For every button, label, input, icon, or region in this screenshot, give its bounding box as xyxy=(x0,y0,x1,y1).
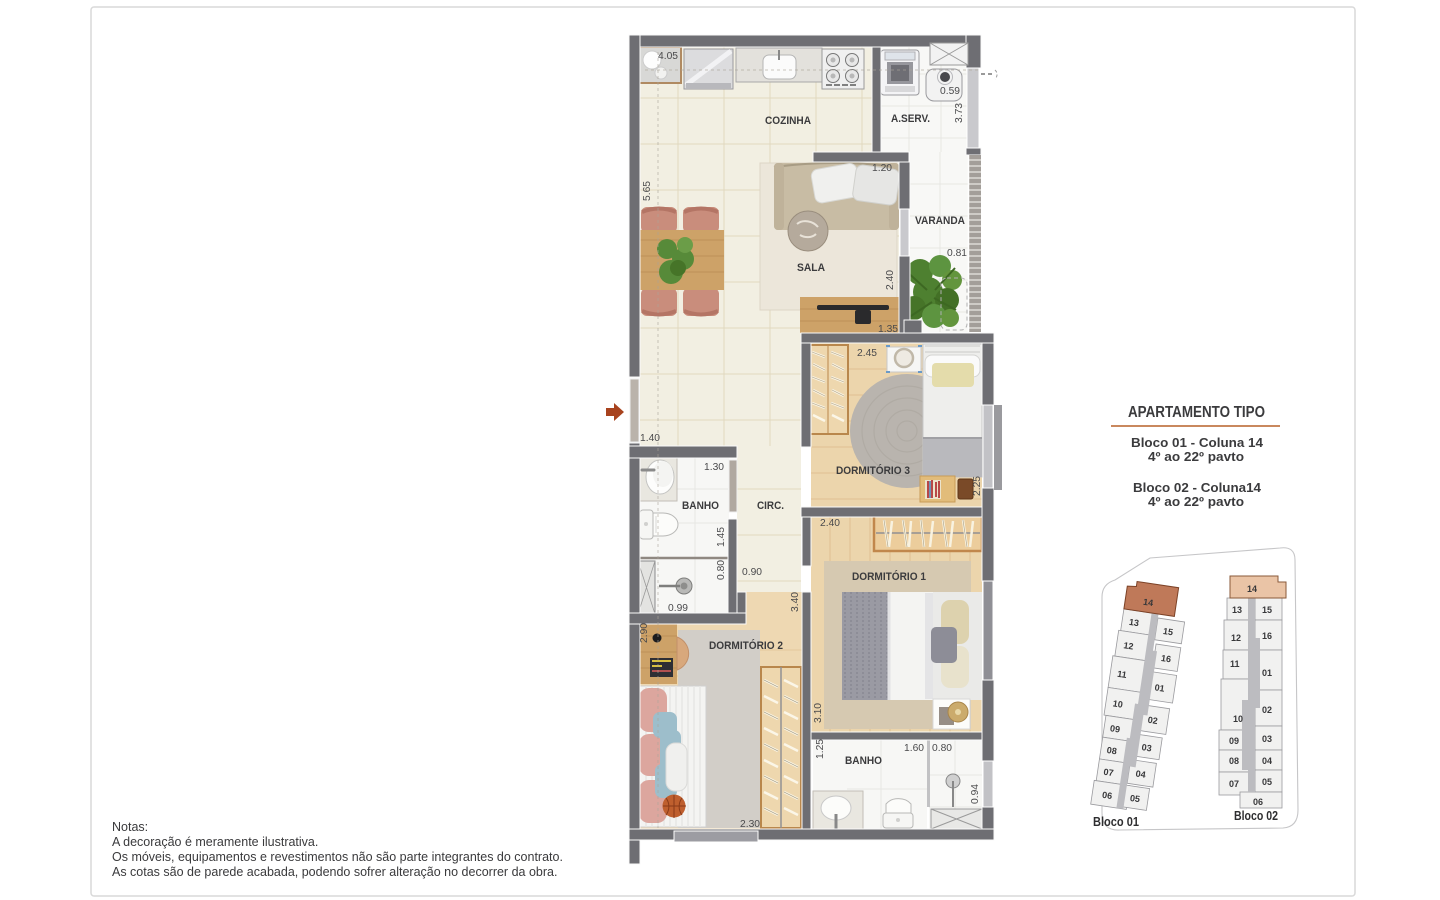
svg-text:BANHO: BANHO xyxy=(682,500,719,512)
svg-text:10: 10 xyxy=(1112,698,1123,709)
svg-text:4º ao 22º pavto: 4º ao 22º pavto xyxy=(1148,449,1244,464)
svg-text:04: 04 xyxy=(1135,768,1146,779)
svg-text:Notas:: Notas: xyxy=(112,820,148,834)
svg-text:10: 10 xyxy=(1233,714,1243,724)
svg-text:02: 02 xyxy=(1262,705,1272,715)
svg-text:5.65: 5.65 xyxy=(642,181,653,201)
svg-text:1.25: 1.25 xyxy=(815,739,826,759)
svg-text:Bloco 02: Bloco 02 xyxy=(1234,809,1278,823)
svg-text:VARANDA: VARANDA xyxy=(915,215,965,227)
svg-text:1.40: 1.40 xyxy=(640,433,660,444)
svg-text:2.30: 2.30 xyxy=(740,819,760,830)
svg-text:09: 09 xyxy=(1109,723,1120,734)
svg-text:1.60: 1.60 xyxy=(904,743,924,754)
svg-text:11: 11 xyxy=(1117,669,1128,680)
svg-text:1.35: 1.35 xyxy=(878,324,898,335)
svg-text:13: 13 xyxy=(1232,605,1242,615)
svg-text:01: 01 xyxy=(1154,682,1165,693)
svg-text:07: 07 xyxy=(1103,767,1114,778)
svg-text:0.99: 0.99 xyxy=(668,603,688,614)
svg-text:BANHO: BANHO xyxy=(845,755,882,767)
svg-text:15: 15 xyxy=(1162,626,1173,637)
svg-text:06: 06 xyxy=(1101,790,1112,801)
svg-text:DORMITÓRIO 2: DORMITÓRIO 2 xyxy=(709,639,783,652)
svg-text:01: 01 xyxy=(1262,668,1272,678)
svg-text:11: 11 xyxy=(1230,659,1240,669)
svg-text:03: 03 xyxy=(1141,742,1152,753)
svg-text:1.20: 1.20 xyxy=(872,163,892,174)
svg-text:16: 16 xyxy=(1160,653,1171,664)
svg-text:2.25: 2.25 xyxy=(972,476,983,496)
svg-text:APARTAMENTO TIPO: APARTAMENTO TIPO xyxy=(1128,404,1265,421)
svg-text:0.59: 0.59 xyxy=(940,86,960,97)
svg-text:2.40: 2.40 xyxy=(885,270,896,290)
svg-text:05: 05 xyxy=(1262,777,1272,787)
svg-text:0.81: 0.81 xyxy=(947,248,967,259)
svg-text:03: 03 xyxy=(1262,734,1272,744)
svg-text:08: 08 xyxy=(1229,756,1239,766)
svg-text:A.SERV.: A.SERV. xyxy=(891,113,930,125)
svg-text:16: 16 xyxy=(1262,631,1272,641)
svg-text:14: 14 xyxy=(1247,584,1257,594)
svg-text:Bloco 01: Bloco 01 xyxy=(1093,815,1139,829)
svg-text:Os móveis, equipamentos e reve: Os móveis, equipamentos e revestimentos … xyxy=(112,850,563,864)
svg-text:06: 06 xyxy=(1253,797,1263,807)
svg-text:1.30: 1.30 xyxy=(704,462,724,473)
svg-text:07: 07 xyxy=(1229,779,1239,789)
svg-text:09: 09 xyxy=(1229,736,1239,746)
svg-text:12: 12 xyxy=(1231,633,1241,643)
svg-text:2.90: 2.90 xyxy=(639,623,650,643)
svg-text:14: 14 xyxy=(1142,597,1153,608)
svg-text:2.45: 2.45 xyxy=(857,348,877,359)
svg-text:0.90: 0.90 xyxy=(742,567,762,578)
svg-text:13: 13 xyxy=(1128,617,1139,628)
svg-text:DORMITÓRIO 1: DORMITÓRIO 1 xyxy=(852,570,926,583)
svg-text:04: 04 xyxy=(1262,756,1272,766)
svg-text:3.73: 3.73 xyxy=(954,103,965,123)
svg-text:DORMITÓRIO 3: DORMITÓRIO 3 xyxy=(836,464,910,477)
svg-text:08: 08 xyxy=(1106,745,1117,756)
svg-text:12: 12 xyxy=(1123,640,1134,651)
svg-text:SALA: SALA xyxy=(797,262,825,274)
svg-text:4º ao 22º pavto: 4º ao 22º pavto xyxy=(1148,494,1244,509)
svg-text:15: 15 xyxy=(1262,605,1272,615)
svg-text:4.05: 4.05 xyxy=(658,51,678,62)
svg-text:05: 05 xyxy=(1129,793,1140,804)
svg-text:3.40: 3.40 xyxy=(790,592,801,612)
svg-text:3.10: 3.10 xyxy=(813,703,824,723)
svg-text:2.40: 2.40 xyxy=(820,518,840,529)
svg-text:Bloco 02 - Coluna14: Bloco 02 - Coluna14 xyxy=(1133,480,1262,495)
svg-text:CIRC.: CIRC. xyxy=(757,500,784,512)
svg-text:1.45: 1.45 xyxy=(716,527,727,547)
svg-text:COZINHA: COZINHA xyxy=(765,115,811,127)
svg-text:Bloco 01 - Coluna 14: Bloco 01 - Coluna 14 xyxy=(1131,435,1264,450)
svg-text:0.94: 0.94 xyxy=(970,784,981,804)
svg-text:0.80: 0.80 xyxy=(716,560,727,580)
svg-text:02: 02 xyxy=(1147,715,1158,726)
svg-text:A decoração é meramente ilustr: A decoração é meramente ilustrativa. xyxy=(112,835,318,849)
svg-text:0.80: 0.80 xyxy=(932,743,952,754)
svg-text:As cotas são de parede acabada: As cotas são de parede acabada, podendo … xyxy=(112,865,557,879)
